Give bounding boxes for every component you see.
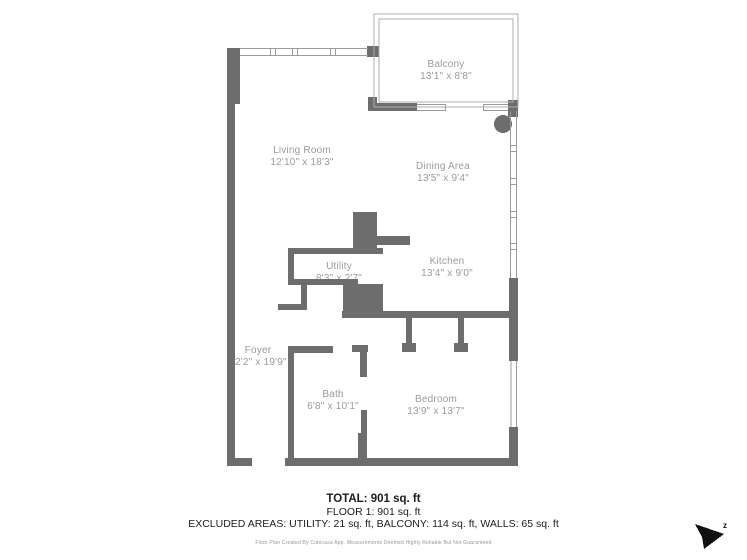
cubicasa-floor-plan-page: Balcony 13'1" x 8'8" Living Room 12'10" … xyxy=(0,0,747,560)
top-wall-right-junction xyxy=(367,46,379,57)
closet-divider-2 xyxy=(458,318,464,345)
dining-column xyxy=(494,115,512,133)
disclaimer-text: Floor Plan Created By Cubicasa App. Meas… xyxy=(0,540,747,546)
right-wall-upper xyxy=(509,278,518,361)
floor-area-text: FLOOR 1: 901 sq. ft xyxy=(0,506,747,518)
total-area-text: TOTAL: 901 sq. ft xyxy=(0,493,747,506)
shaft-block xyxy=(343,284,383,313)
closet-divider-1 xyxy=(406,318,412,345)
bottom-wall-main xyxy=(285,458,518,466)
bath-bedroom-wall-lower xyxy=(358,433,367,460)
utility-top-wall xyxy=(288,248,383,254)
bath-top-wall xyxy=(288,346,333,353)
bath-left-wall xyxy=(288,346,294,466)
closet-divider-1-foot xyxy=(402,343,416,352)
foyer-closet-wall-h xyxy=(278,304,307,310)
bath-door-jamb-bar xyxy=(352,345,368,352)
area-summary: TOTAL: 901 sq. ft FLOOR 1: 901 sq. ft EX… xyxy=(0,493,747,530)
left-wall xyxy=(227,48,235,466)
bath-bedroom-wall-upper xyxy=(361,410,367,433)
closet-divider-2-foot xyxy=(454,343,468,352)
excluded-areas-text: EXCLUDED AREAS: UTILITY: 21 sq. ft, BALC… xyxy=(0,518,747,530)
floor-plan: z xyxy=(0,0,747,560)
right-wall-lower xyxy=(509,427,518,466)
duct-column xyxy=(353,212,377,250)
kitchen-entry-wall xyxy=(377,236,410,245)
balcony-outline-inner xyxy=(379,19,513,102)
kitchen-bottom-wall xyxy=(342,311,510,318)
bath-door-jamb xyxy=(360,352,367,377)
bottom-wall-left xyxy=(227,458,252,466)
balcony-outline-outer xyxy=(374,14,518,107)
